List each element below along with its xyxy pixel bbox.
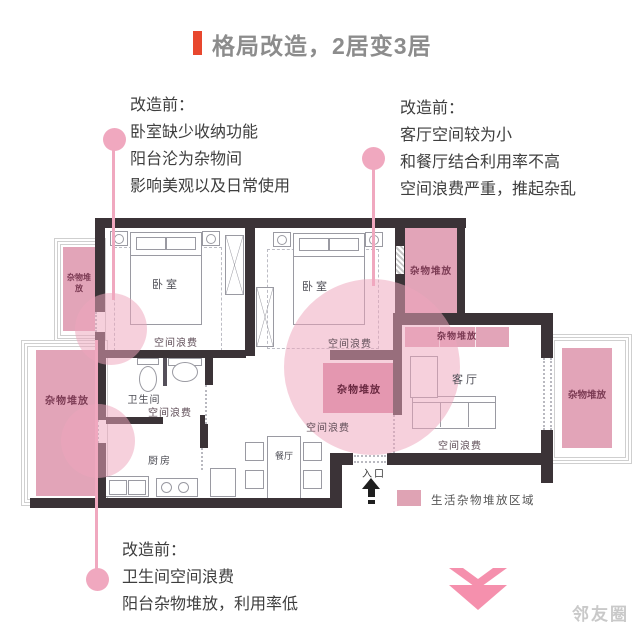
- fridge-icon: [210, 468, 236, 497]
- room-label-bedroom: 卧室: [288, 278, 344, 294]
- callout-line: 和餐厅结合利用率不高: [400, 149, 576, 176]
- wall: [245, 228, 255, 356]
- watermark: 邻友圈: [572, 600, 629, 625]
- infographic-canvas: 格局改造，2居变3居 改造前： 卧室缺少收纳功能 阳台沦为杂物间 影响美观以及日…: [0, 0, 640, 635]
- down-arrow-icon: [463, 568, 493, 579]
- highlight-circle: [61, 404, 135, 478]
- waste-label: 空间浪费: [300, 419, 356, 434]
- callout-bottom: 改造前： 卫生间空间浪费 阳台杂物堆放，利用率低: [122, 537, 298, 618]
- entrance-arrow-icon: [368, 489, 375, 497]
- callout-dot-icon: [362, 147, 385, 170]
- wall: [30, 498, 342, 508]
- waste-label: 空间浪费: [322, 335, 378, 350]
- callout-line: 影响美观以及日常使用: [130, 173, 290, 200]
- chair: [245, 442, 264, 461]
- room-label-kitchen: 厨房: [138, 452, 182, 467]
- room-label-bedroom: 卧室: [138, 276, 194, 292]
- chair: [245, 470, 264, 489]
- clutter-label: 杂物堆放: [327, 381, 391, 396]
- callout-dot-icon: [86, 568, 109, 591]
- callout-line: 卧室缺少收纳功能: [130, 119, 290, 146]
- callout-heading: 改造前：: [122, 537, 298, 564]
- clutter-label: 杂物堆放: [406, 263, 456, 277]
- wardrobe: [225, 235, 244, 295]
- legend-swatch-icon: [397, 490, 421, 506]
- wall-segment: [163, 354, 167, 386]
- door-opening: [201, 448, 208, 470]
- waste-label: 空间浪费: [148, 334, 204, 349]
- stove-icon: [156, 478, 198, 497]
- callout-line-connector: [372, 168, 375, 286]
- title-accent-bar-icon: [193, 31, 202, 55]
- wall: [387, 453, 553, 465]
- callout-line: 阳台杂物堆放，利用率低: [122, 591, 298, 618]
- callout-line-connector: [112, 148, 115, 300]
- clutter-label: 杂物堆放: [65, 272, 93, 294]
- sink-icon: [172, 362, 198, 382]
- legend-label: 生活杂物堆放区域: [431, 492, 535, 508]
- callout-heading: 改造前：: [130, 92, 290, 119]
- chair: [303, 442, 322, 461]
- callout-top-left: 改造前： 卧室缺少收纳功能 阳台沦为杂物间 影响美观以及日常使用: [130, 92, 290, 200]
- chair: [303, 470, 322, 489]
- page-title: 格局改造，2居变3居: [212, 27, 432, 61]
- highlight-circle: [75, 293, 147, 365]
- entrance-arrow-icon: [362, 478, 380, 489]
- entrance-door-opening: [354, 455, 386, 463]
- kitchen-sink-icon: [104, 476, 149, 497]
- window-hatch: [396, 246, 404, 274]
- wall: [457, 228, 465, 313]
- waste-label: 空间浪费: [432, 437, 488, 452]
- callout-top-right: 改造前： 客厅空间较为小 和餐厅结合利用率不高 空间浪费严重，推起杂乱: [400, 95, 576, 203]
- down-arrow-icon: [449, 585, 507, 610]
- clutter-label: 杂物堆放: [564, 387, 610, 401]
- dining-table: [267, 436, 301, 500]
- room-label-living: 客厅: [446, 371, 486, 387]
- wall: [95, 218, 466, 228]
- clutter-label: 杂物堆放: [424, 329, 490, 342]
- toilet-icon: [139, 366, 157, 392]
- toilet-icon: [137, 358, 159, 365]
- room-label-dining: 餐厅: [270, 449, 298, 462]
- callout-line: 卫生间空间浪费: [122, 564, 298, 591]
- wall: [205, 352, 213, 385]
- nightstand-lamp-icon: [273, 232, 291, 247]
- nightstand-lamp-icon: [202, 231, 220, 246]
- callout-line: 阳台沦为杂物间: [130, 146, 290, 173]
- window-opening: [543, 358, 552, 430]
- callout-line: 空间浪费严重，推起杂乱: [400, 176, 576, 203]
- waste-label: 空间浪费: [142, 404, 198, 419]
- callout-heading: 改造前：: [400, 95, 576, 122]
- callout-line: 客厅空间较为小: [400, 122, 576, 149]
- door-opening: [205, 385, 213, 424]
- clutter-label: 杂物堆放: [39, 392, 95, 407]
- entrance-arrow-icon: [368, 500, 375, 504]
- wall: [541, 325, 553, 358]
- wardrobe: [256, 287, 274, 347]
- callout-line-connector: [95, 340, 98, 572]
